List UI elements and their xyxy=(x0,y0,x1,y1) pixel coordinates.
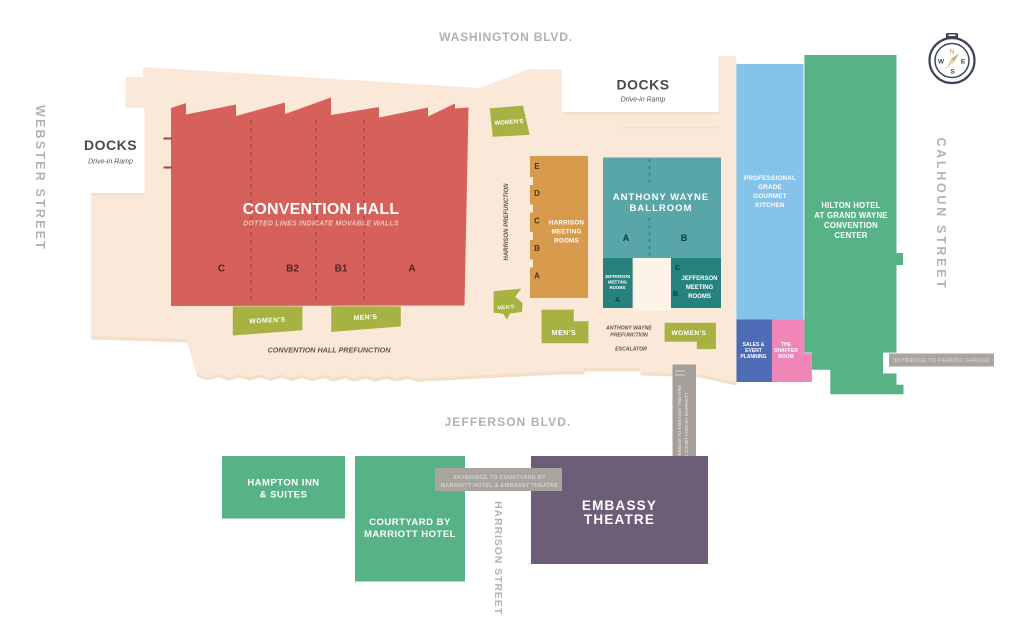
svg-text:JEFFERSON: JEFFERSON xyxy=(605,274,630,279)
svg-text:C: C xyxy=(218,264,225,275)
svg-text:B: B xyxy=(673,291,678,298)
svg-text:MEN'S: MEN'S xyxy=(497,304,515,311)
svg-text:EMBASSY: EMBASSY xyxy=(582,498,657,513)
svg-text:WEBSTER STREET: WEBSTER STREET xyxy=(33,105,47,251)
svg-text:COURTYARD BY: COURTYARD BY xyxy=(369,517,451,528)
svg-text:& SUITES: & SUITES xyxy=(260,490,308,501)
svg-text:DOCKS: DOCKS xyxy=(616,77,669,93)
svg-text:WASHINGTON BLVD.: WASHINGTON BLVD. xyxy=(439,30,573,44)
svg-text:A: A xyxy=(615,297,620,304)
svg-text:ESCALATOR: ESCALATOR xyxy=(615,347,647,353)
svg-text:HARRISON STREET: HARRISON STREET xyxy=(492,501,504,615)
svg-text:W: W xyxy=(938,59,945,66)
svg-text:E: E xyxy=(534,162,540,171)
svg-text:B: B xyxy=(534,244,540,253)
svg-text:B1: B1 xyxy=(335,264,348,275)
svg-text:DOTTED LINES INDICATE MOVABLE: DOTTED LINES INDICATE MOVABLE WALLS xyxy=(243,221,399,228)
svg-text:MARRIOTT HOTEL & EMBASSY THEAT: MARRIOTT HOTEL & EMBASSY THEATRE xyxy=(441,483,559,489)
svg-text:MEN'S: MEN'S xyxy=(354,314,378,322)
svg-text:A: A xyxy=(408,264,415,275)
svg-text:SKYBRIDGE TO EMBASSY THEATRE: SKYBRIDGE TO EMBASSY THEATRE xyxy=(677,385,682,465)
svg-text:CENTER: CENTER xyxy=(834,231,867,240)
svg-text:CONVENTION: CONVENTION xyxy=(824,221,878,230)
svg-text:E: E xyxy=(961,59,966,66)
svg-text:HAMPTON INN: HAMPTON INN xyxy=(247,478,319,489)
svg-text:HILTON HOTEL: HILTON HOTEL xyxy=(821,201,880,210)
svg-text:ANTHONY WAYNE: ANTHONY WAYNE xyxy=(605,326,652,332)
svg-text:DOCKS: DOCKS xyxy=(84,137,137,153)
svg-text:B2: B2 xyxy=(286,264,299,275)
svg-text:Drive-in Ramp: Drive-in Ramp xyxy=(88,159,133,166)
svg-text:B: B xyxy=(681,233,688,243)
svg-text:ROOMS: ROOMS xyxy=(688,294,711,300)
svg-text:CONVENTION HALL PREFUNCTION: CONVENTION HALL PREFUNCTION xyxy=(268,346,392,355)
svg-text:A: A xyxy=(623,233,630,243)
svg-text:MEETING: MEETING xyxy=(686,285,714,291)
svg-text:GOURMET: GOURMET xyxy=(753,193,787,200)
svg-text:PREFUNCTION: PREFUNCTION xyxy=(610,333,648,339)
svg-text:WOMEN'S: WOMEN'S xyxy=(671,330,706,337)
svg-text:S: S xyxy=(950,69,955,76)
svg-text:HARRISON PREFUNCTION: HARRISON PREFUNCTION xyxy=(504,183,510,261)
svg-text:A: A xyxy=(534,272,540,281)
svg-text:MARRIOTT HOTEL: MARRIOTT HOTEL xyxy=(364,529,456,540)
svg-text:C: C xyxy=(534,217,540,226)
svg-text:MEETING: MEETING xyxy=(608,280,627,285)
svg-text:ROOMS: ROOMS xyxy=(554,238,579,245)
svg-text:SKYBRIDGE TO COURTYARD BY: SKYBRIDGE TO COURTYARD BY xyxy=(453,475,546,481)
svg-text:MEN'S: MEN'S xyxy=(552,330,576,337)
svg-text:BALLROOM: BALLROOM xyxy=(630,203,693,214)
svg-text:D: D xyxy=(534,189,540,198)
svg-text:SKYBRIDGE TO PARKING GARAGE: SKYBRIDGE TO PARKING GARAGE xyxy=(893,358,989,364)
svg-text:JEFFERSON BLVD.: JEFFERSON BLVD. xyxy=(445,415,572,429)
svg-text:AT GRAND WAYNE: AT GRAND WAYNE xyxy=(814,211,887,220)
svg-text:MEETING: MEETING xyxy=(551,229,581,236)
svg-text:CALHOUN STREET: CALHOUN STREET xyxy=(934,137,948,290)
svg-text:ANTHONY WAYNE: ANTHONY WAYNE xyxy=(613,192,709,203)
svg-text:KITCHEN: KITCHEN xyxy=(755,202,785,209)
svg-text:Drive-in Ramp: Drive-in Ramp xyxy=(621,97,666,104)
svg-text:THEATRE: THEATRE xyxy=(584,512,655,527)
svg-text:& COURTYARD BY MARRIOTT: & COURTYARD BY MARRIOTT xyxy=(684,392,689,458)
svg-text:N: N xyxy=(950,49,955,56)
svg-text:ROOMS: ROOMS xyxy=(610,285,626,290)
svg-text:GRADE: GRADE xyxy=(758,184,782,191)
svg-text:C: C xyxy=(675,265,680,272)
svg-text:ROOM: ROOM xyxy=(778,354,794,360)
svg-text:CONVENTION HALL: CONVENTION HALL xyxy=(243,201,400,218)
svg-text:PLANNING: PLANNING xyxy=(740,354,766,360)
svg-text:HARRISON: HARRISON xyxy=(549,220,584,227)
svg-text:PROFESSIONAL: PROFESSIONAL xyxy=(744,175,796,182)
svg-text:JEFFERSON: JEFFERSON xyxy=(681,276,717,282)
